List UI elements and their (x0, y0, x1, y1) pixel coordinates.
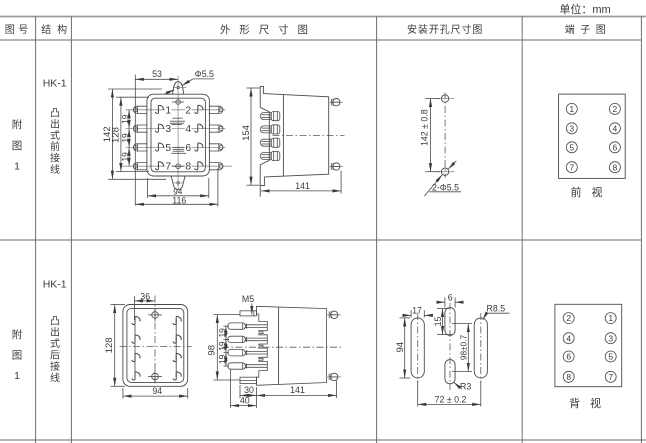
svg-text:98±0.7: 98±0.7 (459, 334, 469, 360)
svg-text:7: 7 (569, 162, 574, 172)
svg-text:2: 2 (185, 105, 191, 116)
svg-text:1: 1 (608, 313, 613, 323)
svg-text:19: 19 (217, 354, 227, 364)
svg-text:36: 36 (140, 292, 150, 302)
svg-text:19: 19 (120, 114, 130, 124)
svg-text:19: 19 (120, 152, 130, 162)
svg-text:出: 出 (50, 118, 60, 131)
svg-text:HK-1: HK-1 (43, 279, 67, 291)
svg-text:8: 8 (566, 372, 571, 382)
svg-text:附: 附 (12, 328, 23, 341)
svg-text:1: 1 (14, 370, 20, 382)
svg-text:1: 1 (165, 105, 171, 116)
svg-text:接: 接 (50, 152, 60, 165)
svg-text:5: 5 (165, 143, 171, 154)
svg-text:2-Φ5.5: 2-Φ5.5 (432, 182, 459, 192)
svg-text:142 ± 0.8: 142 ± 0.8 (420, 109, 430, 146)
svg-text:3: 3 (569, 123, 574, 133)
svg-text:94: 94 (395, 342, 406, 353)
svg-text:前视: 前视 (571, 185, 613, 199)
svg-text:72 ± 0.2: 72 ± 0.2 (435, 394, 467, 404)
svg-text:19: 19 (217, 328, 227, 338)
svg-text:6: 6 (448, 293, 453, 303)
svg-text:安装开孔尺寸图: 安装开孔尺寸图 (407, 23, 483, 36)
svg-text:94: 94 (152, 386, 162, 396)
svg-text:8: 8 (613, 162, 618, 172)
svg-text:线: 线 (50, 163, 60, 176)
svg-text:6: 6 (185, 143, 191, 154)
svg-text:单位：mm: 单位：mm (559, 2, 610, 16)
svg-text:40: 40 (240, 396, 250, 406)
svg-text:5: 5 (608, 352, 613, 362)
svg-text:2: 2 (613, 104, 618, 114)
svg-text:116: 116 (172, 195, 186, 205)
svg-text:141: 141 (295, 181, 310, 191)
svg-text:图: 图 (12, 140, 23, 152)
svg-text:后: 后 (50, 350, 60, 362)
svg-text:附: 附 (12, 118, 23, 131)
svg-text:图号: 图号 (5, 24, 32, 36)
svg-text:19: 19 (217, 341, 227, 351)
svg-text:1: 1 (569, 104, 574, 114)
svg-text:3: 3 (165, 124, 171, 135)
svg-text:凸: 凸 (50, 315, 60, 327)
svg-text:6: 6 (566, 352, 571, 362)
svg-text:接: 接 (50, 360, 60, 373)
svg-text:4: 4 (566, 333, 571, 343)
svg-text:式: 式 (50, 337, 60, 350)
svg-text:结构: 结构 (41, 23, 73, 36)
svg-text:4: 4 (613, 123, 618, 133)
svg-text:前: 前 (50, 140, 60, 153)
svg-text:出: 出 (50, 326, 60, 339)
svg-text:19: 19 (120, 133, 130, 143)
svg-text:R3: R3 (460, 382, 471, 392)
svg-text:4: 4 (185, 124, 191, 135)
svg-text:3: 3 (608, 333, 613, 343)
svg-text:线: 线 (50, 372, 60, 385)
svg-text:M5: M5 (242, 294, 254, 304)
svg-text:53: 53 (152, 69, 162, 79)
svg-text:Φ5.5: Φ5.5 (195, 69, 214, 79)
svg-text:图: 图 (12, 350, 23, 362)
svg-text:凸: 凸 (50, 107, 60, 119)
svg-text:7: 7 (608, 372, 613, 382)
svg-text:8: 8 (185, 162, 191, 173)
svg-text:端子图: 端子图 (565, 23, 612, 36)
svg-text:30: 30 (244, 385, 254, 395)
svg-text:1: 1 (14, 161, 20, 173)
svg-text:5: 5 (569, 142, 574, 152)
svg-text:外形尺寸图: 外形尺寸图 (220, 23, 317, 36)
svg-text:128: 128 (104, 337, 115, 353)
svg-text:17: 17 (412, 306, 422, 316)
svg-text:HK-1: HK-1 (43, 78, 67, 90)
svg-text:式: 式 (50, 129, 60, 142)
svg-text:15: 15 (433, 317, 443, 327)
svg-text:154: 154 (241, 125, 252, 141)
svg-text:R8.5: R8.5 (487, 304, 506, 314)
svg-text:背视: 背视 (569, 396, 611, 410)
svg-text:2: 2 (566, 313, 571, 323)
svg-text:6: 6 (613, 142, 618, 152)
svg-text:7: 7 (165, 162, 171, 173)
svg-text:141: 141 (290, 385, 305, 395)
